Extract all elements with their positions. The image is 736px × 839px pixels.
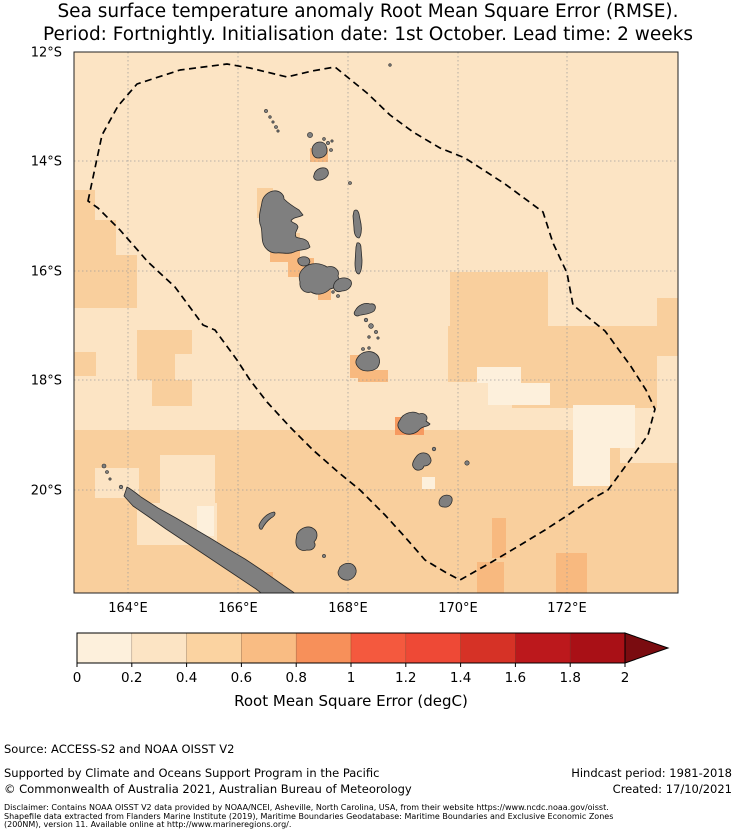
island-malakula-islet <box>332 291 335 294</box>
island-mota-lava <box>307 132 312 137</box>
colorbar-label: Root Mean Square Error (degC) <box>234 692 468 710</box>
colorbar-segment <box>351 633 406 663</box>
colorbar-extend-arrow <box>625 633 668 663</box>
island-shepherd-islet <box>374 330 377 333</box>
copyright-line: © Commonwealth of Australia 2021, Austra… <box>4 782 412 796</box>
island-mota <box>330 149 333 152</box>
rmse-cell <box>74 190 95 220</box>
colorbar-segments <box>77 633 625 663</box>
colorbar-segment <box>187 633 242 663</box>
island-merig-islet <box>349 182 352 185</box>
colorbar-tick-label: 1.2 <box>395 670 416 686</box>
rmse-cell <box>74 352 96 376</box>
colorbar: 00.20.40.60.811.21.41.61.82 Root Mean Sq… <box>0 610 736 810</box>
island-tiga <box>322 554 325 557</box>
figure: Sea surface temperature anomaly Root Mea… <box>0 0 736 839</box>
island-torres-islet <box>272 121 274 123</box>
colorbar-tick-label: 1.6 <box>505 670 526 686</box>
rmse-cell <box>488 383 550 405</box>
rmse-cell <box>450 272 548 326</box>
island-belep-islet <box>102 464 106 468</box>
island-malakula-islet <box>337 295 340 298</box>
colorbar-tick-label: 0.2 <box>121 670 142 686</box>
supported-line: Supported by Climate and Oceans Support … <box>4 766 379 780</box>
y-tick-label: 12°S <box>31 46 62 61</box>
island-banks-islet <box>323 138 326 141</box>
hindcast-period: Hindcast period: 1981-2018 <box>571 766 732 780</box>
source-line: Source: ACCESS-S2 and NOAA OISST V2 <box>4 742 234 756</box>
island-torres-islet <box>277 130 279 132</box>
colorbar-tick-label: 2 <box>621 670 630 686</box>
island-aniwa <box>432 447 436 451</box>
rmse-cell <box>422 477 435 489</box>
colorbar-tick-label: 0.8 <box>285 670 306 686</box>
y-tick-label: 16°S <box>31 265 62 280</box>
island-torres-islet <box>275 126 278 129</box>
rmse-cell <box>477 367 521 383</box>
colorbar-tick-labels: 00.20.40.60.811.21.41.61.82 <box>73 663 630 686</box>
rmse-cell <box>657 298 681 328</box>
rmse-cell <box>160 455 215 503</box>
rmse-cell <box>573 448 610 486</box>
colorbar-segment <box>77 633 132 663</box>
rmse-cell <box>137 354 175 380</box>
map-plot: 12°S14°S16°S18°S20°S 164°E166°E168°E170°… <box>0 0 736 620</box>
colorbar-segment <box>296 633 351 663</box>
rmse-cell <box>492 518 506 558</box>
rmse-cell <box>137 330 192 354</box>
colorbar-segment <box>132 633 187 663</box>
island-efate-islet <box>368 347 371 350</box>
rmse-cell <box>74 255 137 308</box>
island-hiu <box>389 64 392 67</box>
colorbar-arrow <box>625 633 668 663</box>
island-shepherd-islet <box>364 318 368 322</box>
y-tick-label: 18°S <box>31 374 62 389</box>
rmse-cell <box>556 553 587 595</box>
island-pentecost <box>355 243 362 274</box>
colorbar-tick-label: 0.4 <box>176 670 197 686</box>
colorbar-segment <box>515 633 570 663</box>
colorbar-tick-label: 0 <box>73 670 82 686</box>
colorbar-segment <box>406 633 461 663</box>
island-futuna <box>465 461 469 465</box>
colorbar-tick-label: 0.6 <box>231 670 252 686</box>
colorbar-tick-label: 1.4 <box>450 670 471 686</box>
rmse-cell <box>477 562 504 595</box>
disclaimer: Disclaimer: Contains NOAA OISST V2 data … <box>4 804 734 830</box>
colorbar-tick-label: 1.8 <box>559 670 580 686</box>
rmse-cell <box>512 326 681 356</box>
island-torres-islet <box>264 109 267 112</box>
y-axis-labels: 12°S14°S16°S18°S20°S <box>31 46 62 499</box>
island-malo <box>298 257 310 266</box>
colorbar-tick-label: 1 <box>347 670 356 686</box>
island-torres-islet <box>269 116 272 119</box>
colorbar-segment <box>241 633 296 663</box>
y-tick-label: 14°S <box>31 155 62 170</box>
island-mare <box>338 563 356 580</box>
rmse-cell <box>152 380 192 406</box>
island-efate-islet <box>362 348 365 351</box>
island-belep-islet <box>109 478 111 480</box>
y-tick-label: 20°S <box>31 484 62 499</box>
island-shepherd-islet <box>368 336 371 339</box>
island-belep-islet <box>106 471 109 474</box>
island-gaua <box>312 142 327 158</box>
island-shepherd-islet <box>377 337 379 339</box>
colorbar-segment <box>461 633 516 663</box>
colorbar-segment <box>570 633 625 663</box>
disclaimer-line3: (200NM), version 11. Available online at… <box>4 821 734 830</box>
rmse-cell <box>573 405 635 448</box>
island-banks-islet <box>331 140 333 142</box>
island-shepherd-islet <box>369 324 374 329</box>
rmse-cell <box>74 220 116 255</box>
island-belep-islet <box>119 485 123 489</box>
island-banks-islet <box>326 141 329 144</box>
created-date: Created: 17/10/2021 <box>613 782 732 796</box>
